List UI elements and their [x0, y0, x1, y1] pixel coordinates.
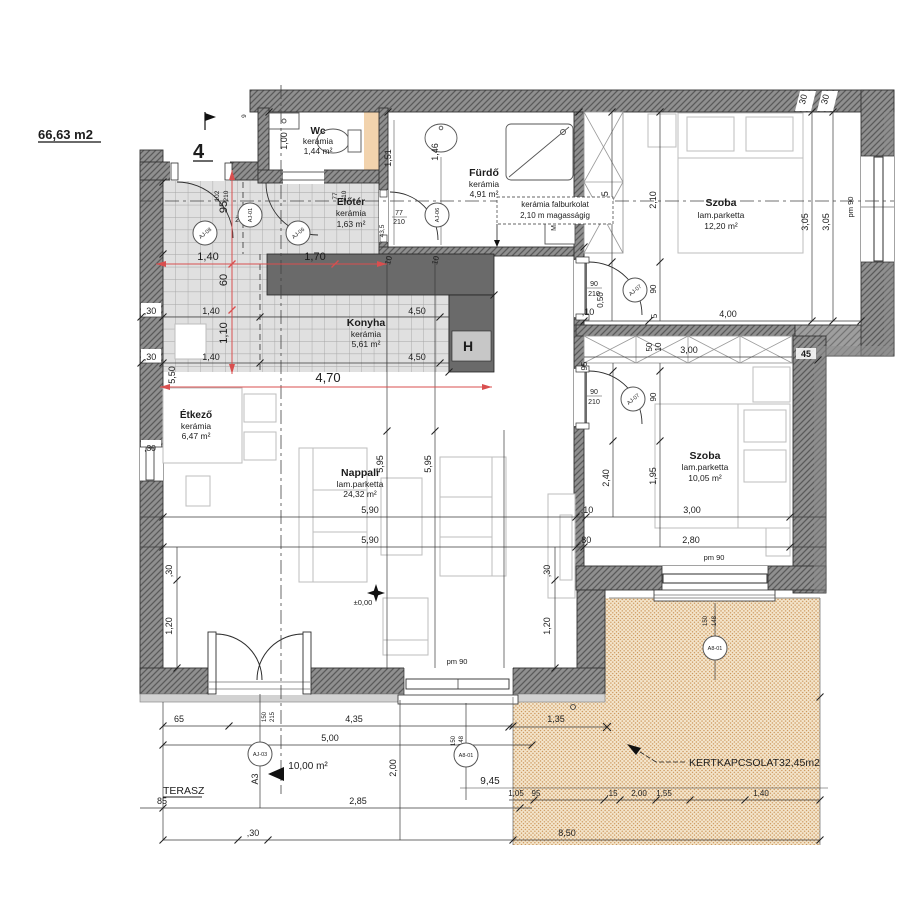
svg-text:A8-01: A8-01 — [459, 753, 474, 759]
svg-text:,15: ,15 — [606, 789, 618, 798]
svg-text:lam.parketta: lam.parketta — [337, 479, 384, 489]
svg-text:M: M — [551, 225, 558, 231]
svg-text:210: 210 — [588, 399, 600, 406]
svg-text:5,50: 5,50 — [167, 366, 177, 384]
svg-text:1,40: 1,40 — [753, 789, 769, 798]
svg-text:8,50: 8,50 — [558, 828, 576, 838]
svg-text:,30: ,30 — [144, 352, 157, 362]
svg-text:90: 90 — [590, 281, 598, 288]
svg-text:90: 90 — [649, 392, 658, 401]
svg-text:Étkező: Étkező — [180, 408, 212, 421]
svg-text:10: 10 — [654, 342, 663, 351]
svg-text:0,50: 0,50 — [596, 292, 605, 308]
svg-text:5,95: 5,95 — [423, 455, 433, 473]
svg-text:Konyha: Konyha — [347, 317, 386, 329]
svg-text:12,20 m²: 12,20 m² — [704, 221, 738, 231]
svg-text:Előtér: Előtér — [337, 197, 365, 208]
svg-text:148: 148 — [712, 615, 718, 626]
svg-text:77: 77 — [395, 210, 403, 217]
svg-text:kerámia: kerámia — [336, 208, 367, 218]
svg-text:9,45: 9,45 — [480, 776, 500, 787]
svg-text:4,50: 4,50 — [408, 306, 426, 316]
svg-text:3,00: 3,00 — [683, 505, 701, 515]
svg-text:A8-01: A8-01 — [708, 646, 723, 652]
svg-text:95: 95 — [218, 201, 230, 213]
svg-text:60: 60 — [218, 274, 230, 286]
svg-text:65: 65 — [174, 714, 184, 724]
svg-text:1,55: 1,55 — [656, 789, 672, 798]
svg-text:215: 215 — [270, 711, 276, 722]
svg-text:3,05: 3,05 — [821, 213, 831, 231]
svg-text:95: 95 — [532, 789, 541, 798]
svg-text:AJ-06: AJ-06 — [435, 208, 441, 222]
svg-text:4,35: 4,35 — [345, 714, 363, 724]
svg-text:66,63 m2: 66,63 m2 — [38, 127, 93, 142]
svg-text:1,20: 1,20 — [542, 617, 552, 635]
svg-text:1,40: 1,40 — [202, 306, 220, 316]
svg-text:1,35: 1,35 — [547, 714, 565, 724]
svg-text:50: 50 — [645, 342, 654, 351]
svg-text:1,10: 1,10 — [218, 322, 230, 343]
svg-text:1,95: 1,95 — [648, 467, 658, 485]
svg-text:lam.parketta: lam.parketta — [682, 462, 729, 472]
svg-text:Szoba: Szoba — [690, 450, 721, 462]
svg-text:,30: ,30 — [542, 565, 552, 578]
svg-text:,80: ,80 — [579, 535, 592, 545]
svg-text:1,63 m²: 1,63 m² — [337, 219, 366, 229]
svg-text:1,00: 1,00 — [279, 132, 289, 150]
svg-text:24,32 m²: 24,32 m² — [343, 489, 377, 499]
svg-text:6,47 m²: 6,47 m² — [182, 431, 211, 441]
svg-text:5,00: 5,00 — [321, 733, 339, 743]
svg-text:2,80: 2,80 — [682, 535, 700, 545]
svg-text:90: 90 — [590, 389, 598, 396]
svg-text:Fürdő: Fürdő — [469, 167, 499, 179]
svg-text:,30: ,30 — [144, 306, 157, 316]
svg-text:90: 90 — [649, 284, 658, 293]
svg-text:Szoba: Szoba — [706, 197, 737, 209]
svg-text:95: 95 — [580, 361, 589, 370]
svg-text:1,44 m²: 1,44 m² — [304, 146, 333, 156]
svg-text:150: 150 — [451, 735, 457, 746]
svg-text:4,00: 4,00 — [719, 309, 737, 319]
svg-text:4,50: 4,50 — [408, 352, 426, 362]
svg-text:5,90: 5,90 — [361, 505, 379, 515]
svg-text:,30: ,30 — [144, 443, 156, 453]
svg-text:4,70: 4,70 — [315, 370, 340, 385]
svg-text:2,10 m magasságig: 2,10 m magasságig — [520, 211, 590, 220]
svg-text:1,40: 1,40 — [197, 251, 218, 263]
svg-text:kerámia: kerámia — [469, 179, 500, 189]
svg-text:2,85: 2,85 — [349, 796, 367, 806]
svg-text:2,00: 2,00 — [388, 759, 398, 777]
svg-text:4: 4 — [193, 141, 205, 163]
svg-text:KERTKAPCSOLAT32,45m2: KERTKAPCSOLAT32,45m2 — [689, 757, 820, 769]
svg-text:10,05 m²: 10,05 m² — [688, 473, 722, 483]
svg-text:2,40: 2,40 — [601, 469, 611, 487]
svg-text:±0,00: ±0,00 — [354, 598, 373, 607]
svg-text:AJ-03: AJ-03 — [253, 752, 267, 758]
svg-text:kerámia: kerámia — [351, 329, 382, 339]
svg-text:kerámia: kerámia — [181, 421, 212, 431]
svg-text:,10: ,10 — [582, 307, 595, 317]
svg-text:5: 5 — [650, 313, 659, 318]
svg-text:1,51: 1,51 — [383, 149, 393, 167]
svg-text:AJ-01: AJ-01 — [248, 208, 254, 222]
svg-text:kerámia falburkolat: kerámia falburkolat — [521, 200, 589, 209]
svg-text:150: 150 — [703, 615, 709, 626]
svg-text:pm 90: pm 90 — [846, 197, 855, 218]
svg-text:,30: ,30 — [164, 565, 174, 578]
svg-text:2,00: 2,00 — [631, 789, 647, 798]
svg-text:lam.parketta: lam.parketta — [698, 210, 745, 220]
svg-text:102: 102 — [214, 190, 221, 201]
svg-text:1,46: 1,46 — [430, 143, 440, 161]
svg-text:150: 150 — [262, 711, 268, 722]
svg-text:2,10: 2,10 — [648, 191, 658, 209]
svg-text:A3: A3 — [250, 773, 260, 784]
svg-text:1,05: 1,05 — [508, 789, 524, 798]
svg-text:3,05: 3,05 — [800, 213, 810, 231]
svg-text:210: 210 — [223, 190, 230, 201]
svg-text:1,70: 1,70 — [304, 251, 325, 263]
svg-text:pm 90: pm 90 — [447, 657, 468, 666]
svg-text:kerámia: kerámia — [303, 136, 334, 146]
svg-text:10,00 m²: 10,00 m² — [288, 761, 328, 772]
svg-text:3,00: 3,00 — [680, 345, 698, 355]
svg-text:5,61 m²: 5,61 m² — [352, 339, 381, 349]
svg-text:210: 210 — [393, 219, 405, 226]
svg-text:Nappali: Nappali — [341, 467, 379, 479]
svg-text:1,20: 1,20 — [164, 617, 174, 635]
svg-text:TERASZ: TERASZ — [163, 785, 205, 797]
svg-text:5,90: 5,90 — [361, 535, 379, 545]
svg-text:,30: ,30 — [247, 828, 260, 838]
svg-text:85: 85 — [157, 796, 167, 806]
svg-text:,10: ,10 — [581, 505, 594, 515]
svg-text:4,91 m²: 4,91 m² — [470, 189, 499, 199]
svg-text:43,5: 43,5 — [379, 224, 386, 237]
svg-text:1,40: 1,40 — [202, 352, 220, 362]
svg-text:pm 90: pm 90 — [704, 553, 725, 562]
svg-text:H: H — [463, 338, 473, 354]
svg-text:45: 45 — [801, 349, 811, 359]
svg-text:9: 9 — [241, 114, 248, 118]
